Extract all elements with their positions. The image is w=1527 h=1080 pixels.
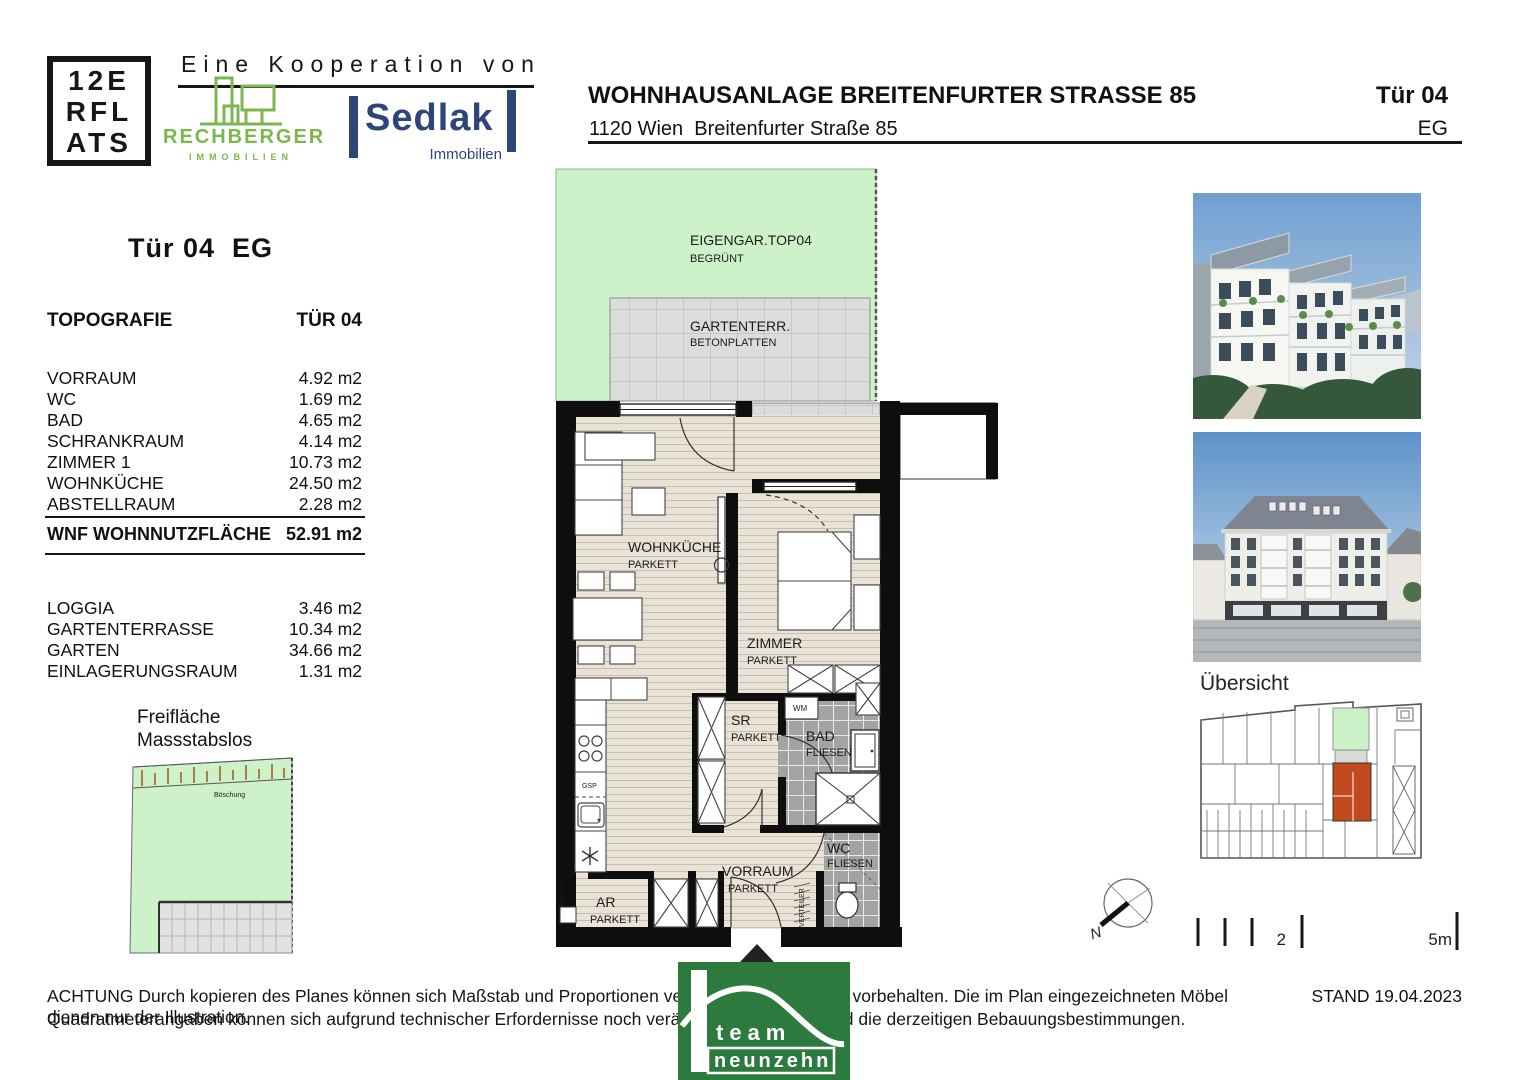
table-row: WC1.69 m2 xyxy=(47,389,362,410)
overview-title: Übersicht xyxy=(1200,672,1289,696)
overview-terrace xyxy=(1335,750,1367,763)
garden-sublabel: BEGRÜNT xyxy=(690,253,744,265)
room-area: 4.14 m2 xyxy=(299,431,362,452)
twelverflats-logo: 12E RFL ATS xyxy=(47,56,151,166)
garden-terrace-area xyxy=(610,298,870,401)
room-label: WOHNKÜCHE xyxy=(47,473,164,494)
table-row: EINLAGERUNGSRAUM1.31 m2 xyxy=(47,661,362,682)
logo-neunzehn-text: neunzehn xyxy=(714,1050,831,1072)
floor-label: EG xyxy=(1250,117,1448,141)
slope-label: Böschung xyxy=(214,792,245,799)
room-label: LOGGIA xyxy=(47,598,114,619)
freiflaeche-plan: Böschung xyxy=(128,755,300,960)
overview-garden xyxy=(1333,708,1369,750)
brand-line: 12E xyxy=(68,65,130,96)
entrance-arrow-icon xyxy=(740,944,774,962)
zimmer-sublabel: PARKETT xyxy=(747,655,797,667)
building-rendering-street xyxy=(1193,432,1421,662)
compass-icon: N xyxy=(1088,876,1160,940)
zimmer-label: ZIMMER xyxy=(747,635,802,651)
sr-sublabel: PARKETT xyxy=(731,732,781,744)
table-row: SCHRANKRAUM4.14 m2 xyxy=(47,431,362,452)
room-label: ZIMMER 1 xyxy=(47,452,131,473)
total-label: WNF WOHNNUTZFLÄCHE xyxy=(47,524,271,545)
room-label: WC xyxy=(47,389,76,410)
ar-sublabel: PARKETT xyxy=(590,914,640,926)
overview-plan xyxy=(1195,700,1471,868)
dishwasher-label: GSP xyxy=(582,783,597,790)
room-label: ABSTELLRAUM xyxy=(47,494,175,515)
rechberger-building-icon xyxy=(198,74,284,126)
room-area: 1.69 m2 xyxy=(299,389,362,410)
total-row: WNF WOHNNUTZFLÄCHE 52.91 m2 xyxy=(47,524,362,545)
unit-label: Tür 04 xyxy=(1250,82,1448,110)
sedlak-logo-bar-left xyxy=(349,96,358,158)
room-area: 2.28 m2 xyxy=(299,494,362,515)
topography-table: VORRAUM4.92 m2 WC1.69 m2 BAD4.65 m2 SCHR… xyxy=(47,368,362,515)
table-row: GARTEN34.66 m2 xyxy=(47,640,362,661)
table-row: BAD4.65 m2 xyxy=(47,410,362,431)
room-area: 10.73 m2 xyxy=(289,452,362,473)
ar-label: AR xyxy=(596,894,615,910)
room-area: 24.50 m2 xyxy=(289,473,362,494)
rechberger-logo-text: RECHBERGER xyxy=(163,126,319,149)
room-label: VORRAUM xyxy=(47,368,136,389)
disclaimer-line2: Quadratmeterangaben können sich aufgrund… xyxy=(47,1009,1257,1030)
table-row: WOHNKÜCHE24.50 m2 xyxy=(47,473,362,494)
freiflaeche-caption: Freifläche Massstabslos xyxy=(137,706,252,752)
room-label: GARTEN xyxy=(47,640,120,661)
logo-team-text: team xyxy=(716,1020,791,1045)
wall-niche xyxy=(560,907,576,923)
terrace-grid xyxy=(159,902,292,953)
neighbour-structure xyxy=(900,403,998,479)
terrace-sublabel: BETONPLATTEN xyxy=(690,337,776,349)
terrace-label: GARTENTERR. xyxy=(690,318,790,334)
column-header-unit: TÜR 04 xyxy=(297,310,362,332)
room-area: 4.92 m2 xyxy=(299,368,362,389)
overview-highlighted-unit xyxy=(1333,763,1371,821)
column-header-topografie: TOPOGRAFIE xyxy=(47,310,172,332)
rechberger-logo-subtext: IMMOBILIEN xyxy=(163,152,319,162)
scale-2m-label: 2 xyxy=(1277,930,1286,949)
sedlak-logo-subtext: Immobilien xyxy=(360,146,502,163)
building-rendering-terraces xyxy=(1193,193,1421,419)
sedlak-logo-bar-right xyxy=(507,90,516,152)
page-title: WOHNHAUSANLAGE BREITENFURTER STRASSE 85 xyxy=(588,82,1196,110)
vorraum-label: VORRAUM xyxy=(722,863,794,879)
revision-date: STAND 19.04.2023 xyxy=(1262,986,1462,1007)
wohnkueche-label: WOHNKÜCHE xyxy=(628,538,721,555)
brand-line: RFL xyxy=(66,96,132,127)
brand-line: ATS xyxy=(66,127,132,158)
header-rule xyxy=(588,141,1462,144)
room-area: 3.46 m2 xyxy=(299,598,362,619)
bad-sublabel: FLIESEN xyxy=(806,747,852,759)
table-row: GARTENTERRASSE10.34 m2 xyxy=(47,619,362,640)
table-row: ABSTELLRAUM2.28 m2 xyxy=(47,494,362,515)
wc-sublabel: FLIESEN xyxy=(827,858,873,870)
verteiler-label: VERTEILER xyxy=(799,888,806,927)
table-row: LOGGIA3.46 m2 xyxy=(47,598,362,619)
room-label: BAD xyxy=(47,410,83,431)
freiflaeche-line2: Massstabslos xyxy=(137,729,252,752)
coffee-table xyxy=(632,488,665,515)
room-area: 1.31 m2 xyxy=(299,661,362,682)
freiflaeche-line1: Freifläche xyxy=(137,706,252,729)
table-row: ZIMMER 110.73 m2 xyxy=(47,452,362,473)
table-divider xyxy=(45,516,365,518)
page-address: 1120 Wien Breitenfurter Straße 85 xyxy=(589,118,898,141)
washing-machine-label: WM xyxy=(793,704,808,713)
overview-elevator xyxy=(1393,766,1415,854)
room-area: 34.66 m2 xyxy=(289,640,362,661)
total-value: 52.91 m2 xyxy=(286,524,362,545)
bad-label: BAD xyxy=(806,728,835,744)
room-label: GARTENTERRASSE xyxy=(47,619,214,640)
scale-bar: 2 5m xyxy=(1190,905,1470,955)
scale-5m-label: 5m xyxy=(1428,930,1452,949)
wc-label: WC xyxy=(827,840,850,856)
sr-label: SR xyxy=(731,712,750,728)
room-label: EINLAGERUNGSRAUM xyxy=(47,661,238,682)
wohnkueche-sublabel: PARKETT xyxy=(628,559,678,571)
room-label: SCHRANKRAUM xyxy=(47,431,184,452)
outdoor-table: LOGGIA3.46 m2 GARTENTERRASSE10.34 m2 GAR… xyxy=(47,598,362,682)
table-row: VORRAUM4.92 m2 xyxy=(47,368,362,389)
sink-icon xyxy=(578,803,604,827)
floor-plan-sheet: 12E RFL ATS Eine Kooperation von RECHBER… xyxy=(0,0,1527,1080)
table-divider xyxy=(45,553,365,555)
sedlak-logo-text: Sedlak xyxy=(365,97,494,140)
garden-label: EIGENGAR.TOP04 xyxy=(690,232,812,248)
vorraum-sublabel: PARKETT xyxy=(728,883,778,895)
room-area: 4.65 m2 xyxy=(299,410,362,431)
unit-heading: Tür 04 EG xyxy=(128,233,273,264)
stu-label: STU H:15 xyxy=(560,883,566,907)
apartment-floor-plan: EIGENGAR.TOP04 BEGRÜNT GARTENTERR. BETON… xyxy=(548,165,1018,965)
topography-table-header: TOPOGRAFIE TÜR 04 xyxy=(47,310,362,332)
room-area: 10.34 m2 xyxy=(289,619,362,640)
team-neunzehn-logo: team neunzehn xyxy=(678,962,850,1080)
north-label: N xyxy=(1088,924,1104,940)
